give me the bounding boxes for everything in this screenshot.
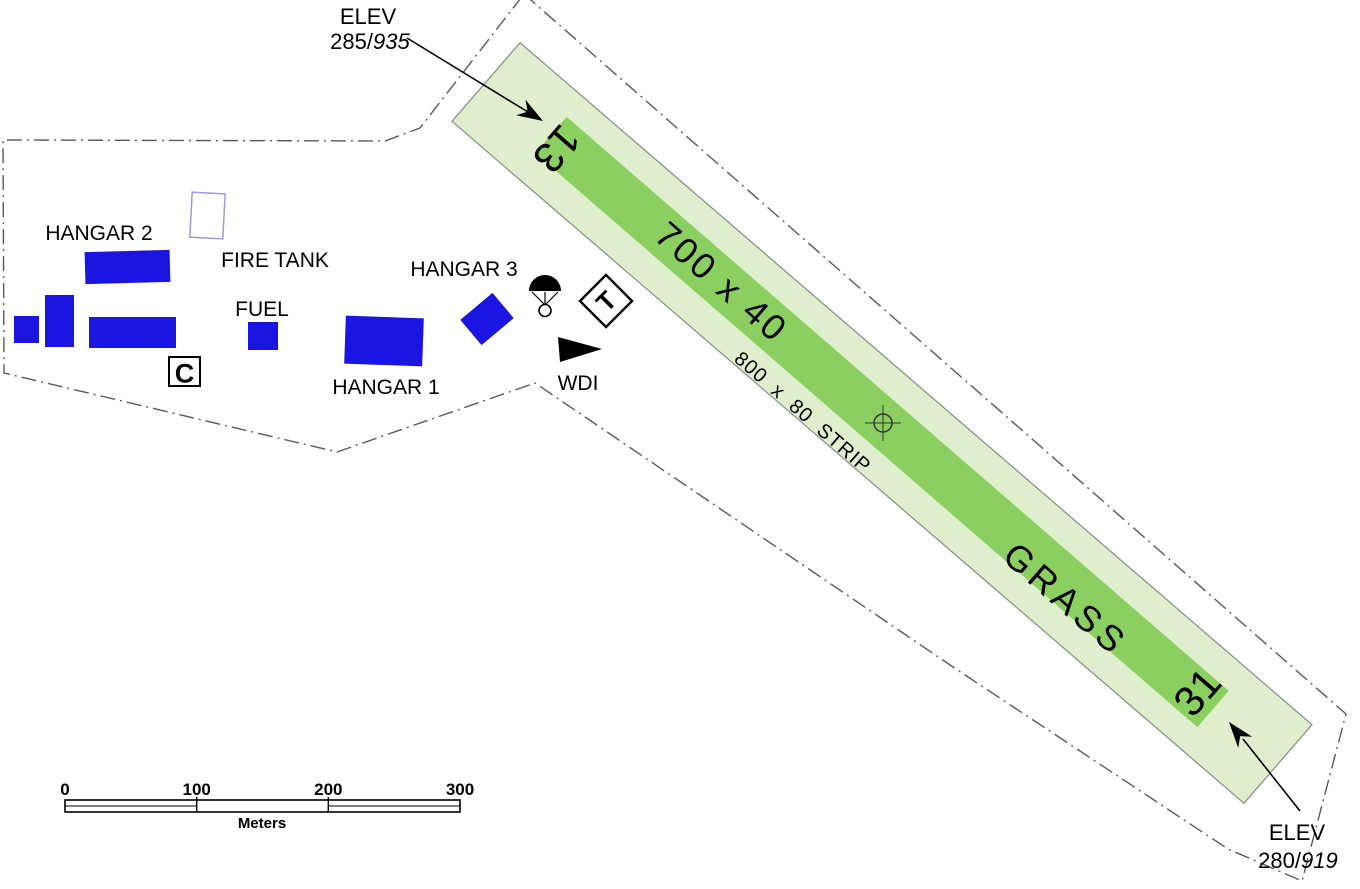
fire-tank-label: FIRE TANK bbox=[221, 249, 329, 272]
hangar-1-label: HANGAR 1 bbox=[332, 376, 439, 399]
aerodrome-chart: 13 31 700 x 40 GRASS 800 x 80 STRIP ELEV… bbox=[0, 0, 1360, 889]
hangar-2-building bbox=[85, 250, 171, 284]
building-small-2 bbox=[45, 295, 74, 347]
wdi-label: WDI bbox=[558, 372, 599, 395]
scale-tick-100: 100 bbox=[183, 780, 211, 799]
fuel-label: FUEL bbox=[235, 298, 289, 321]
wdi-triangle-icon bbox=[558, 337, 602, 362]
property-boundary bbox=[3, 0, 1346, 881]
svg-text:C: C bbox=[175, 358, 195, 388]
hangar-3-label: HANGAR 3 bbox=[410, 258, 517, 281]
scale-tick-0: 0 bbox=[60, 780, 69, 799]
parachute-icon bbox=[529, 275, 561, 317]
svg-text:919: 919 bbox=[1301, 848, 1338, 873]
building-small-1 bbox=[14, 316, 39, 343]
svg-text:ELEV: ELEV bbox=[340, 4, 397, 29]
hangar-2-label: HANGAR 2 bbox=[45, 222, 152, 245]
svg-text:ELEV: ELEV bbox=[1269, 820, 1326, 845]
svg-text:280/: 280/ bbox=[1258, 848, 1302, 873]
building-wide bbox=[89, 317, 176, 348]
scale-tick-200: 200 bbox=[314, 780, 342, 799]
svg-text:935: 935 bbox=[373, 29, 410, 54]
hangar-1-building bbox=[344, 316, 424, 367]
svg-text:285/: 285/ bbox=[330, 29, 374, 54]
fire-tank-outline bbox=[190, 192, 225, 239]
wdi-symbol: WDI bbox=[558, 337, 602, 395]
boxed-c-symbol: C bbox=[169, 357, 200, 388]
scale-bar: 0 100 200 300 Meters bbox=[60, 780, 474, 832]
boxed-t-symbol: T bbox=[580, 275, 632, 327]
fuel-building bbox=[248, 322, 278, 350]
scale-unit-label: Meters bbox=[238, 815, 286, 832]
scale-tick-300: 300 bbox=[446, 780, 474, 799]
hangar-3-building bbox=[460, 293, 513, 345]
